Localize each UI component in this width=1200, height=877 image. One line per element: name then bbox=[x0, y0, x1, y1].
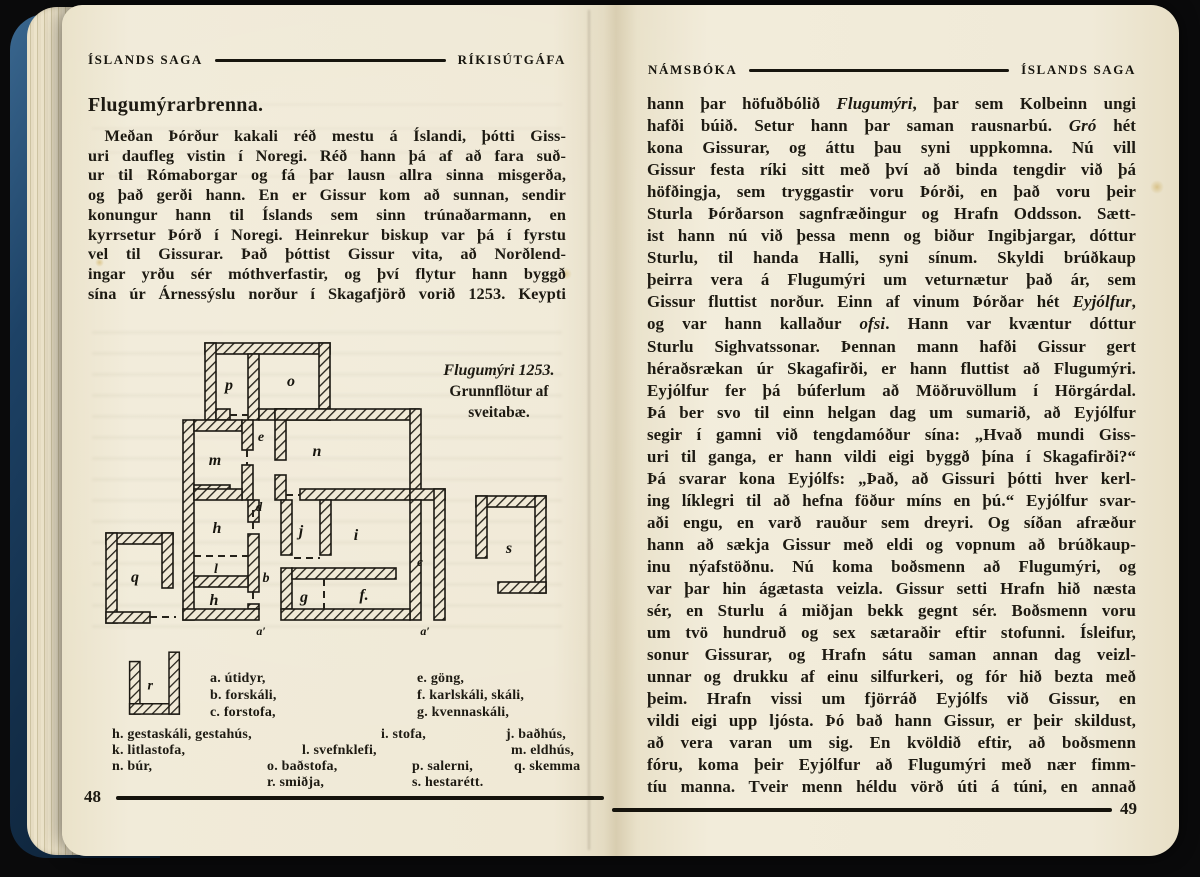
room-label-g: g bbox=[299, 589, 308, 606]
legend-item-f: f. karlskáli, skáli, bbox=[417, 688, 524, 704]
book-scan: ÍSLANDS SAGA RÍKISÚTGÁFA Flugumýrarbrenn… bbox=[0, 0, 1200, 877]
text-line: sér, en Sturlu á miðjan bekk gegnt sér. … bbox=[647, 600, 1136, 622]
head-rule bbox=[749, 69, 1009, 72]
figure-caption: Flugumýri 1253. Grunnflötur af sveitabæ. bbox=[428, 360, 570, 423]
right-head-title: ÍSLANDS SAGA bbox=[1021, 62, 1136, 78]
text-line: vildi eigi upp ljósta. Þó bað hann Gissu… bbox=[647, 710, 1136, 732]
room-label-l: l bbox=[214, 562, 218, 577]
text-line: ingar yrðu sér móthverfastir, og því fly… bbox=[88, 264, 566, 284]
foxing-spot bbox=[1150, 180, 1164, 194]
text-line: höfðingja, sem tryggastir voru Þórði, en… bbox=[647, 181, 1136, 203]
legend-item-n: n. búr, bbox=[112, 759, 152, 775]
text-line: þeirra vera á Flugumýri um veturnætur þa… bbox=[647, 269, 1136, 291]
door-label-a-right: a′ bbox=[420, 624, 429, 638]
legend-item-b: b. forskáli, bbox=[210, 688, 277, 704]
text-line: ing líklegri til að hefna föður míns en … bbox=[647, 490, 1136, 512]
text-line: Gissur fluttist norður. Einn af vinum Þó… bbox=[647, 291, 1136, 313]
text-line: Þá svarar kona Eyjólfs: „Það, að Gissuri… bbox=[647, 468, 1136, 490]
room-label-d: d bbox=[256, 500, 263, 514]
room-label-q: q bbox=[131, 569, 139, 586]
legend-item-i: i. stofa, bbox=[381, 727, 426, 743]
room-label-r: r bbox=[148, 678, 154, 694]
legend-item-p: p. salerni, bbox=[412, 759, 473, 775]
legend-item-q: q. skemma bbox=[514, 759, 580, 775]
legend-item-c: c. forstofa, bbox=[210, 705, 276, 721]
text-line: að vera varan um sig. En kvöldið eftir, … bbox=[647, 732, 1136, 754]
text-line: segir í gamni við tengdamóður sína: „Hva… bbox=[647, 424, 1136, 446]
door-label-a-left: a′ bbox=[256, 624, 265, 638]
text-line: Þá ber svo til einn helgan dag um sumari… bbox=[647, 402, 1136, 424]
text-line: þeim. Hrafn vissi um fjörráð Eyjólfs við… bbox=[647, 688, 1136, 710]
text-line: héraðsrækan úr Skagafirði, er hann flutt… bbox=[647, 358, 1136, 380]
legend-item-s: s. hestarétt. bbox=[412, 775, 483, 791]
figure-caption-sub1: Grunnflötur af bbox=[428, 381, 570, 402]
text-line: Sturlu Sighvatssonar. Þennan mann hafði … bbox=[647, 336, 1136, 358]
legend-item-h: h. gestaskáli, gestahús, bbox=[112, 727, 252, 743]
text-line: unnar og drukku af einu silfurkeri, og f… bbox=[647, 666, 1136, 688]
legend-item-g: g. kvennaskáli, bbox=[417, 705, 509, 721]
text-line: uri til ganga, er hann vildi eigi byggð … bbox=[647, 446, 1136, 468]
left-head-publisher: RÍKISÚTGÁFA bbox=[458, 52, 566, 68]
text-line: Sturla Þórðarson sagnfræðingur og Hrafn … bbox=[647, 203, 1136, 225]
right-page-number: 49 bbox=[1120, 799, 1137, 819]
text-line: kyrrsetur Þórð í Noregi. Heinrekur bisku… bbox=[88, 225, 566, 245]
text-line: og var hann kallaður ofsi. Hann var kvæn… bbox=[647, 313, 1136, 335]
text-line: uri daufleg vistin í Noregi. Réð hann þá… bbox=[88, 146, 566, 166]
room-label-i: i bbox=[354, 527, 359, 544]
right-head-series: NÁMSBÓKA bbox=[648, 62, 737, 78]
left-page-paragraph: Meðan Þórður kakali réð mestu á Íslandi,… bbox=[88, 126, 566, 303]
gutter-crease bbox=[588, 10, 590, 850]
text-line: konungur hann til Íslands sem sinn trúna… bbox=[88, 205, 566, 225]
left-running-head: ÍSLANDS SAGA RÍKISÚTGÁFA bbox=[88, 52, 566, 68]
text-line: tíu manna. Tveir menn héldu vörð úti á t… bbox=[647, 776, 1136, 798]
room-label-o: o bbox=[287, 373, 295, 390]
figure-caption-title: Flugumýri 1253. bbox=[428, 360, 570, 381]
room-label-e: e bbox=[258, 430, 264, 445]
text-line: ur til Rómaborgar og fá þar lausn allra … bbox=[88, 165, 566, 185]
legend-item-m: m. eldhús, bbox=[511, 743, 574, 759]
text-line: hann að sækja Gissur með eldi og vopnum … bbox=[647, 534, 1136, 556]
legend-item-l: l. svefnklefi, bbox=[302, 743, 377, 759]
text-line: hafði búið. Setur hann þar saman rausnar… bbox=[647, 115, 1136, 137]
text-line: fóru, koma þeir Eyjólfur að Flugumýri me… bbox=[647, 754, 1136, 776]
text-line: Meðan Þórður kakali réð mestu á Íslandi,… bbox=[88, 126, 566, 146]
room-label-c: c bbox=[417, 554, 423, 569]
right-page-text: hann þar höfuðbólið Flugumýri, þar sem K… bbox=[647, 93, 1136, 799]
smithy-walls bbox=[130, 652, 180, 714]
left-footer-rule bbox=[116, 796, 604, 800]
smithy-plan-figure: r bbox=[124, 648, 184, 722]
text-line: sonur Gissurar, og Hrafn sátu saman anna… bbox=[647, 644, 1136, 666]
text-line: aði engu, en varð rauður sem dreyri. Og … bbox=[647, 512, 1136, 534]
text-line: Eyjólfur fer þá búferlum að Möðruvöllum … bbox=[647, 380, 1136, 402]
room-label-f: f. bbox=[359, 587, 368, 604]
text-line: hann þar höfuðbólið Flugumýri, þar sem K… bbox=[647, 93, 1136, 115]
legend-item-j: j. baðhús, bbox=[506, 727, 566, 743]
left-head-title: ÍSLANDS SAGA bbox=[88, 52, 203, 68]
right-running-head: NÁMSBÓKA ÍSLANDS SAGA bbox=[648, 62, 1136, 78]
room-label-m: m bbox=[209, 452, 221, 469]
figure-caption-sub2: sveitabæ. bbox=[428, 402, 570, 423]
room-label-h-lower: h bbox=[210, 592, 219, 609]
room-label-j: j bbox=[296, 523, 304, 540]
legend-item-a: a. útidyr, bbox=[210, 671, 266, 687]
text-line: og það gerði hann. En er Gissur kom að s… bbox=[88, 185, 566, 205]
room-label-n: n bbox=[313, 443, 322, 460]
room-label-p: p bbox=[223, 377, 233, 394]
text-line: ist hann nú við þessa menn og biður Ingi… bbox=[647, 225, 1136, 247]
legend-item-k: k. litlastofa, bbox=[112, 743, 185, 759]
left-page-number: 48 bbox=[84, 787, 101, 807]
chapter-heading: Flugumýrarbrenna. bbox=[88, 94, 263, 117]
head-rule bbox=[215, 59, 446, 62]
text-line: Gissur festa ríki sitt með því að binda … bbox=[647, 159, 1136, 181]
text-line: inu nýafstöðnu. Nú koma boðsmenn að Flug… bbox=[647, 556, 1136, 578]
room-label-s: s bbox=[505, 540, 512, 557]
text-line: var þar hin ágætasta veizla. Gissur sett… bbox=[647, 578, 1136, 600]
room-label-h-upper: h bbox=[213, 520, 222, 537]
room-label-b: b bbox=[263, 571, 270, 586]
legend-item-r: r. smiðja, bbox=[267, 775, 324, 791]
text-line: sína úr Árnessýslu norður í Skagafjörð v… bbox=[88, 284, 566, 304]
text-line: um tvö hundruð og sex sætaraðir eftir st… bbox=[647, 622, 1136, 644]
text-line: Sturlu, til handa Halli, syni sínum. Sky… bbox=[647, 247, 1136, 269]
right-footer-rule bbox=[612, 808, 1112, 812]
text-line: vel til Gissurar. Það þóttist Gissur vit… bbox=[88, 244, 566, 264]
legend-item-o: o. baðstofa, bbox=[267, 759, 337, 775]
text-line: kona Gissurar, og áttu þau syni uppkomna… bbox=[647, 137, 1136, 159]
legend-item-e: e. göng, bbox=[417, 671, 464, 687]
